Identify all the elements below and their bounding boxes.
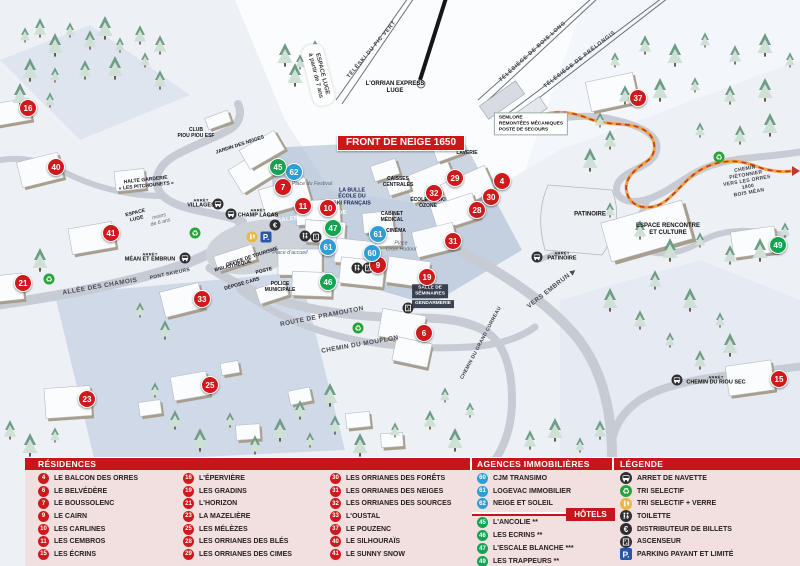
agence-number-badge: 62 (477, 498, 488, 509)
recycle-glass-icon (620, 498, 632, 510)
svg-text:♻: ♻ (622, 486, 630, 496)
residence-name: LES ORRIANES DES FORÊTS (346, 475, 445, 482)
euro-icon: € (270, 220, 281, 231)
recycle-icon: ♻ (353, 323, 364, 334)
map-marker-number: 15 (775, 375, 784, 384)
map-marker: 25 (201, 376, 219, 394)
residence-item: 29 LES ORRIANES DES CIMES (183, 548, 292, 561)
map-marker-number: 40 (52, 163, 61, 172)
legende-item: € DISTRIBUTEUR DE BILLETS (620, 523, 733, 536)
residence-number-badge: 21 (183, 498, 194, 509)
agence-item: 60 CJM TRANSIMO (477, 472, 571, 485)
hotel-item: 46 LES ECRINS ** (477, 529, 574, 542)
toilet-icon (620, 510, 632, 522)
residence-number-badge: 11 (38, 536, 49, 547)
residence-number-badge: 7 (38, 498, 49, 509)
toilet-icon (300, 231, 311, 242)
legende-list: ARRET DE NAVETTE ♻ TRI SELECTIF TRI SELE… (620, 469, 733, 561)
map-marker: 49 (769, 236, 787, 254)
legende-label: TRI SELECTIF + VERRE (637, 500, 716, 507)
map-marker-number: 11 (299, 202, 307, 211)
legende-label: TRI SELECTIF (637, 488, 684, 495)
map-marker-number: 37 (634, 94, 643, 103)
bus-icon (620, 472, 632, 484)
map-marker-number: 10 (324, 204, 333, 213)
legende-item: ARRET DE NAVETTE (620, 472, 733, 485)
residence-number-badge: 28 (183, 536, 194, 547)
agence-name: LOGEVAC IMMOBILIER (493, 488, 571, 495)
recycle-icon: ♻ (714, 152, 725, 163)
recycle-icon: ♻ (190, 228, 201, 239)
legende-label: DISTRIBUTEUR DE BILLETS (637, 526, 732, 533)
hotel-number-badge: 49 (477, 556, 488, 566)
residence-item: 7 LE BOUSSOLENC (38, 497, 138, 510)
residences-title: RÉSIDENCES (38, 459, 96, 469)
residence-item: 40 LE SILHOURAÏS (330, 535, 451, 548)
residence-name: LA MAZELIÈRE (199, 513, 250, 520)
map-marker: 28 (468, 201, 486, 219)
residences-column-1: 4 LE BALCON DES ORRES 6 LE BELVÉDÈRE 7 L… (38, 469, 138, 561)
euro-icon: € (620, 523, 632, 535)
agence-name: NEIGE ET SOLEIL (493, 500, 553, 507)
residence-name: LE BALCON DES ORRES (54, 475, 138, 482)
residence-number-badge: 15 (38, 549, 49, 560)
residence-item: 19 LES GRADINS (183, 485, 292, 498)
legende-label: TOILETTE (637, 513, 671, 520)
residence-name: LES ORRIANES DES SOURCES (346, 500, 451, 507)
residence-item: 37 LE POUZENC (330, 523, 451, 536)
residence-name: LES ÉCRINS (54, 551, 96, 558)
bus-icon (672, 375, 683, 386)
residence-number-badge: 16 (183, 473, 194, 484)
svg-text:€: € (273, 221, 277, 230)
hotel-name: LES ECRINS ** (493, 532, 542, 539)
map-marker: 32 (425, 184, 443, 202)
residence-number-badge: 31 (330, 486, 341, 497)
agences-list: 60 CJM TRANSIMO 61 LOGEVAC IMMOBILIER 62… (477, 469, 571, 510)
map-marker: 61 (369, 225, 387, 243)
legende-title: LÉGENDE (620, 459, 663, 469)
residence-number-badge: 41 (330, 549, 341, 560)
residence-item: 41 LE SUNNY SNOW (330, 548, 451, 561)
residence-item: 33 L'OUSTAL (330, 510, 451, 523)
map-terrain (0, 0, 800, 460)
map-marker-number: 6 (422, 329, 426, 338)
map-marker: 30 (482, 188, 500, 206)
map-marker: 31 (444, 232, 462, 250)
map-marker: 33 (193, 290, 211, 308)
map-marker: 6 (415, 324, 433, 342)
svg-text:♻: ♻ (46, 275, 53, 284)
recycle-glass-icon (247, 232, 258, 243)
hotel-item: 45 L'ANCOLIE ** (477, 516, 574, 529)
map-marker: 29 (446, 169, 464, 187)
map-marker: 47 (324, 219, 342, 237)
svg-text:♻: ♻ (716, 153, 723, 162)
map-marker: 61 (319, 238, 337, 256)
residence-name: LE BOUSSOLENC (54, 500, 114, 507)
map-marker: 19 (418, 268, 436, 286)
map-marker-number: 4 (500, 177, 504, 186)
front-de-neige-banner: FRONT DE NEIGE 1650 (337, 135, 465, 151)
residence-item: 10 LES CARLINES (38, 523, 138, 536)
map-marker: 41 (102, 224, 120, 242)
hotel-item: 49 LES TRAPPEURS ** (477, 555, 574, 566)
map-marker-number: 49 (774, 241, 783, 250)
residence-name: LES GRADINS (199, 488, 247, 495)
residence-item: 23 LA MAZELIÈRE (183, 510, 292, 523)
residence-number-badge: 6 (38, 486, 49, 497)
map-marker-number: 9 (376, 261, 380, 270)
map-marker-number: 25 (206, 381, 215, 390)
legende-item: P. PARKING PAYANT ET LIMITÉ (620, 548, 733, 561)
parking-icon: P. (261, 232, 272, 243)
legende-item: TRI SELECTIF + VERRE (620, 497, 733, 510)
elevator-icon (620, 536, 632, 548)
bus-icon (532, 252, 543, 263)
map-marker: 15 (770, 370, 788, 388)
residence-item: 31 LES ORRIANES DES NEIGES (330, 485, 451, 498)
residences-column-2: 16 L'ÉPERVIÈRE 19 LES GRADINS 21 L'HORIZ… (183, 469, 292, 561)
residence-name: LES CARLINES (54, 526, 105, 533)
hotels-list: 45 L'ANCOLIE ** 46 LES ECRINS ** 47 L'ES… (477, 513, 574, 566)
map-marker: 40 (47, 158, 65, 176)
map-marker-number: 47 (329, 224, 338, 233)
map-marker: 60 (363, 244, 381, 262)
map-marker-number: 19 (423, 273, 432, 282)
map-marker-number: 61 (374, 230, 383, 239)
residence-name: LE SUNNY SNOW (346, 551, 405, 558)
residence-number-badge: 30 (330, 473, 341, 484)
header-separator (470, 457, 472, 470)
residence-name: L'HORIZON (199, 500, 237, 507)
residence-name: LES ORRIANES DES BLÉS (199, 538, 288, 545)
map-marker: 62 (285, 163, 303, 181)
map-marker-number: 16 (24, 104, 33, 113)
residence-number-badge: 32 (330, 498, 341, 509)
bus-icon (180, 253, 191, 264)
residence-name: LES ORRIANES DES NEIGES (346, 488, 443, 495)
svg-text:♻: ♻ (192, 229, 199, 238)
residence-item: 30 LES ORRIANES DES FORÊTS (330, 472, 451, 485)
agence-number-badge: 61 (477, 486, 488, 497)
map-marker-number: 61 (324, 243, 333, 252)
legende-label: ASCENSEUR (637, 538, 681, 545)
residence-item: 25 LES MÉLÈZES (183, 523, 292, 536)
agence-number-badge: 60 (477, 473, 488, 484)
map-marker-number: 46 (324, 278, 333, 287)
hotel-item: 47 L'ESCALE BLANCHE *** (477, 542, 574, 555)
residence-number-badge: 4 (38, 473, 49, 484)
legende-item: ♻ TRI SELECTIF (620, 485, 733, 498)
map-marker-number: 30 (487, 193, 496, 202)
agences-title: AGENCES IMMOBILIÈRES (477, 459, 590, 469)
residence-number-badge: 25 (183, 524, 194, 535)
residence-item: 21 L'HORIZON (183, 497, 292, 510)
resort-map-page: ESPACE LUGE à partir de 7 ans TÉLÉSKI DU… (0, 0, 800, 566)
map-marker: 45 (269, 158, 287, 176)
residence-item: 11 LES CEMBROS (38, 535, 138, 548)
svg-text:P.: P. (263, 233, 269, 242)
map-marker-number: 33 (198, 295, 207, 304)
map-marker-number: 21 (19, 279, 28, 288)
map-marker: 11 (294, 197, 312, 215)
residence-name: L'OUSTAL (346, 513, 380, 520)
agence-name: CJM TRANSIMO (493, 475, 547, 482)
residence-item: 32 LES ORRIANES DES SOURCES (330, 497, 451, 510)
residence-number-badge: 33 (330, 511, 341, 522)
residence-name: LE POUZENC (346, 526, 391, 533)
legende-label: PARKING PAYANT ET LIMITÉ (637, 551, 733, 558)
map-marker: 46 (319, 273, 337, 291)
map-marker-number: 45 (274, 163, 283, 172)
residence-name: LES MÉLÈZES (199, 526, 248, 533)
elevator-icon (403, 303, 414, 314)
residence-item: 9 LE CAIRN (38, 510, 138, 523)
residence-item: 28 LES ORRIANES DES BLÉS (183, 535, 292, 548)
map-marker-number: 62 (290, 168, 299, 177)
residence-number-badge: 19 (183, 486, 194, 497)
header-separator (612, 457, 614, 470)
svg-text:P.: P. (623, 550, 630, 560)
residence-number-badge: 29 (183, 549, 194, 560)
hotel-number-badge: 45 (477, 517, 488, 528)
parking-icon: P. (620, 548, 632, 560)
residence-item: 4 LE BALCON DES ORRES (38, 472, 138, 485)
map-marker: 37 (629, 89, 647, 107)
map-marker-number: 23 (83, 395, 92, 404)
residences-column-3: 30 LES ORRIANES DES FORÊTS 31 LES ORRIAN… (330, 469, 451, 561)
agence-item: 61 LOGEVAC IMMOBILIER (477, 485, 571, 498)
residence-number-badge: 23 (183, 511, 194, 522)
svg-text:€: € (624, 525, 629, 534)
residence-item: 15 LES ÉCRINS (38, 548, 138, 561)
agence-item: 62 NEIGE ET SOLEIL (477, 497, 571, 510)
residence-name: LE CAIRN (54, 513, 87, 520)
recycle-icon: ♻ (44, 274, 55, 285)
svg-text:♻: ♻ (355, 324, 362, 333)
map-marker: 21 (14, 274, 32, 292)
hotels-title: HÔTELS (566, 508, 615, 521)
hotel-number-badge: 46 (477, 530, 488, 541)
residence-item: 6 LE BELVÉDÈRE (38, 485, 138, 498)
residence-name: LE BELVÉDÈRE (54, 488, 107, 495)
legende-item: ASCENSEUR (620, 535, 733, 548)
map-marker-number: 41 (107, 229, 116, 238)
residence-name: LE SILHOURAÏS (346, 538, 400, 545)
residence-number-badge: 37 (330, 524, 341, 535)
hotel-number-badge: 47 (477, 543, 488, 554)
residence-name: LES ORRIANES DES CIMES (199, 551, 292, 558)
map-marker-number: 29 (451, 174, 460, 183)
residence-number-badge: 40 (330, 536, 341, 547)
map-marker: 7 (274, 178, 292, 196)
hotel-name: LES TRAPPEURS ** (493, 558, 559, 565)
map-marker-number: 31 (449, 237, 458, 246)
bus-icon (213, 199, 224, 210)
map-marker: 4 (493, 172, 511, 190)
hotel-name: L'ANCOLIE ** (493, 519, 538, 526)
map-marker-number: 32 (430, 189, 439, 198)
map-marker: 23 (78, 390, 96, 408)
bus-icon (226, 209, 237, 220)
hotel-name: L'ESCALE BLANCHE *** (493, 545, 574, 552)
map-marker: 10 (319, 199, 337, 217)
legende-item: TOILETTE (620, 510, 733, 523)
map-marker-number: 28 (473, 206, 482, 215)
residence-number-badge: 10 (38, 524, 49, 535)
recycle-icon: ♻ (620, 485, 632, 497)
residence-name: LES CEMBROS (54, 538, 105, 545)
map-marker-number: 60 (368, 249, 377, 258)
residence-name: L'ÉPERVIÈRE (199, 475, 245, 482)
map-marker-number: 7 (281, 183, 285, 192)
residence-number-badge: 9 (38, 511, 49, 522)
residence-item: 16 L'ÉPERVIÈRE (183, 472, 292, 485)
map-marker: 16 (19, 99, 37, 117)
toilet-icon (352, 263, 363, 274)
legende-label: ARRET DE NAVETTE (637, 475, 707, 482)
